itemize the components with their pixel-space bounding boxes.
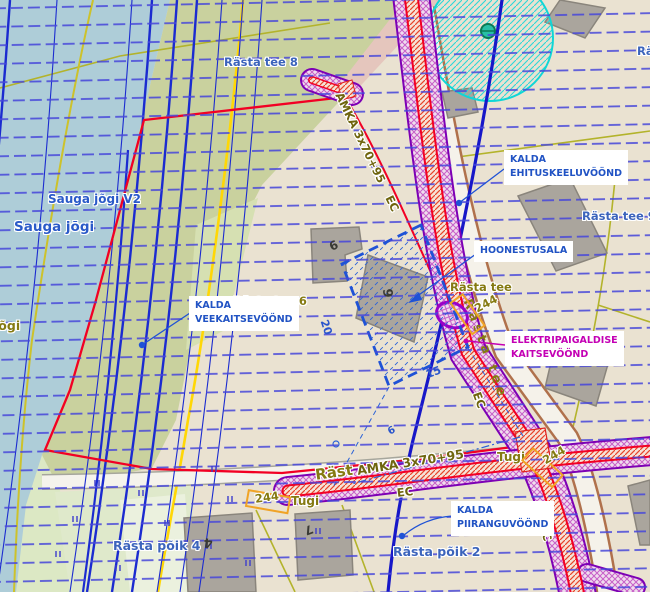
hatch-dashed-overlay — [0, 0, 650, 592]
map-canvas[interactable] — [0, 0, 650, 592]
map-view: Rästa tee 8 Rästa tee 9 Rä Rästa tee 6 R… — [0, 0, 650, 592]
